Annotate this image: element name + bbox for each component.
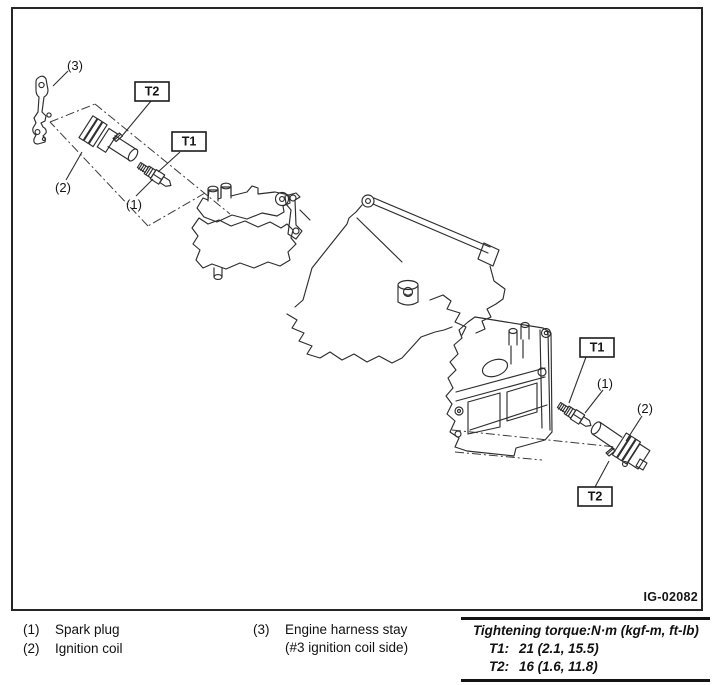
t2-left-text: T2 (145, 85, 160, 99)
legend-item-2: (2)Ignition coil (23, 641, 123, 656)
legend-label-note: (#3 ignition coil side) (285, 640, 408, 655)
legend-ref: (3) (253, 622, 285, 637)
callout-1-right: (1) (597, 376, 613, 391)
callout-t1-right: T1 (580, 338, 614, 357)
callout-3: (3) (67, 58, 83, 73)
legend-label: Spark plug (55, 622, 120, 637)
t1-right-text: T1 (590, 341, 605, 355)
exploded-view-diagram: (3) T2 T1 (2) (1) T1 (1) (2) T2 IG-02082 (0, 0, 713, 685)
torque-header: Tightening torque:N·m (kgf-m, ft-lb) (473, 623, 710, 638)
torque-value: 21 (2.1, 15.5) (519, 641, 599, 656)
callout-t2-left: T2 (135, 82, 169, 101)
torque-row-t1: T1:21 (2.1, 15.5) (473, 641, 710, 656)
callout-2-right: (2) (637, 401, 653, 416)
manual-page: { "figure": { "code": "IG-02082", "callo… (0, 0, 713, 685)
legend-ref: (1) (23, 622, 55, 637)
callout-2-left: (2) (55, 180, 71, 195)
t1-left-text: T1 (182, 135, 197, 149)
torque-value: 16 (1.6, 11.8) (519, 659, 598, 674)
callout-1-left: (1) (126, 197, 142, 212)
legend-item-3: (3)Engine harness stay (253, 622, 407, 637)
torque-key: T1: (489, 641, 519, 656)
torque-row-t2: T2:16 (1.6, 11.8) (473, 659, 710, 674)
callout-t1-left: T1 (172, 132, 206, 151)
legend-label: Ignition coil (55, 641, 123, 656)
callout-3-text: (3) (67, 58, 83, 73)
t2-right-text: T2 (588, 490, 603, 504)
legend-item-3-note: (#3 ignition coil side) (285, 640, 408, 655)
legend-ref: (2) (23, 641, 55, 656)
legend-item-1: (1)Spark plug (23, 622, 120, 637)
legend-label: Engine harness stay (285, 622, 407, 637)
torque-table: Tightening torque:N·m (kgf-m, ft-lb) T1:… (461, 617, 710, 682)
callout-t2-right: T2 (578, 487, 612, 506)
figure-code: IG-02082 (643, 590, 698, 604)
torque-key: T2: (489, 659, 519, 674)
diagram-frame (12, 8, 702, 610)
